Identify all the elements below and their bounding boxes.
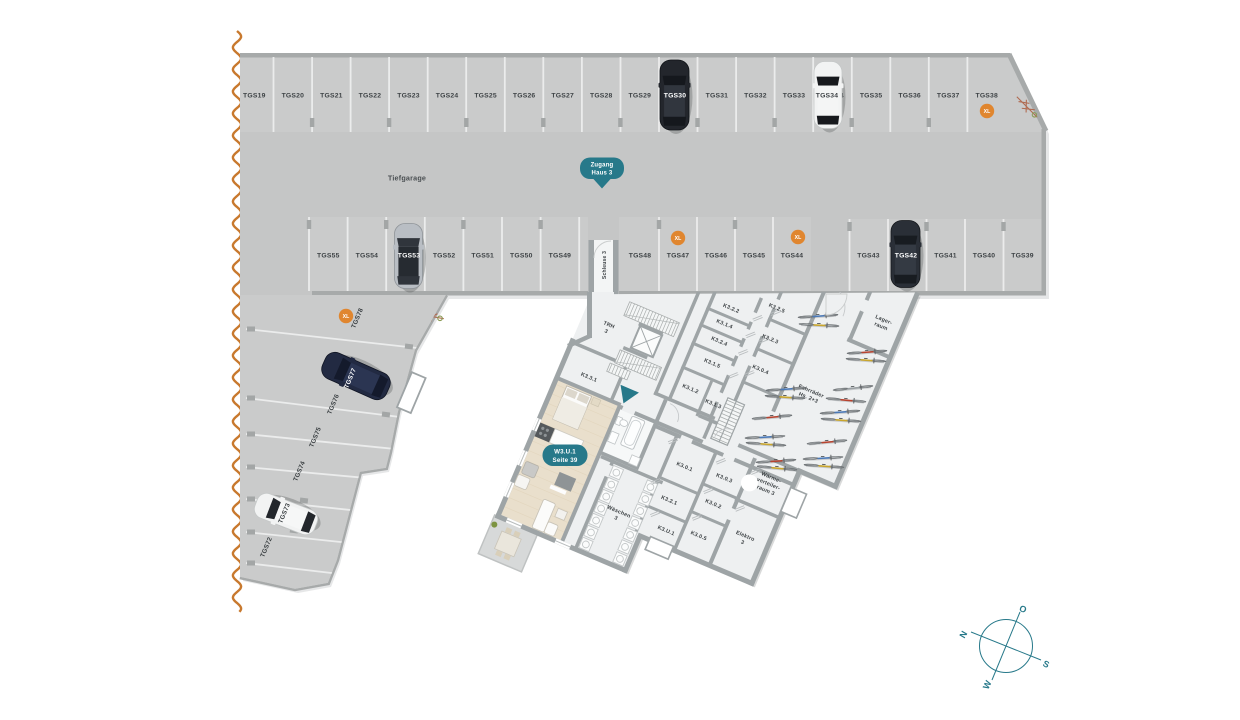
- svg-text:TGS45: TGS45: [743, 253, 766, 260]
- svg-text:TGS20: TGS20: [282, 93, 305, 100]
- svg-text:TGS26: TGS26: [513, 93, 536, 100]
- svg-text:XL: XL: [984, 109, 991, 115]
- svg-text:TGS55: TGS55: [317, 253, 340, 260]
- svg-text:S: S: [1041, 658, 1051, 670]
- svg-text:TGS38: TGS38: [975, 93, 998, 100]
- svg-text:TGS53: TGS53: [398, 253, 421, 260]
- svg-text:TGS35: TGS35: [860, 93, 883, 100]
- svg-text:XL: XL: [795, 235, 802, 241]
- svg-text:TGS41: TGS41: [934, 253, 957, 260]
- svg-text:Haus 3: Haus 3: [592, 171, 613, 177]
- svg-text:W: W: [981, 678, 994, 690]
- svg-text:TGS51: TGS51: [471, 253, 494, 260]
- svg-text:TGS21: TGS21: [320, 93, 343, 100]
- svg-text:TGS50: TGS50: [510, 253, 533, 260]
- svg-text:TGS24: TGS24: [436, 93, 459, 100]
- svg-text:Zugang: Zugang: [591, 163, 614, 169]
- svg-text:XL: XL: [675, 236, 682, 242]
- svg-text:TGS54: TGS54: [356, 253, 379, 260]
- svg-text:TGS37: TGS37: [937, 93, 960, 100]
- svg-text:TGS40: TGS40: [973, 253, 996, 260]
- svg-text:TGS23: TGS23: [397, 93, 420, 100]
- svg-text:TGS48: TGS48: [629, 253, 652, 260]
- svg-text:TGS22: TGS22: [359, 93, 382, 100]
- svg-text:TGS32: TGS32: [744, 93, 767, 100]
- svg-text:TGS28: TGS28: [590, 93, 613, 100]
- svg-text:TGS46: TGS46: [705, 253, 728, 260]
- svg-text:TGS25: TGS25: [474, 93, 497, 100]
- svg-text:XL: XL: [343, 314, 350, 320]
- svg-text:TGS27: TGS27: [551, 93, 574, 100]
- svg-text:TGS36: TGS36: [898, 93, 921, 100]
- svg-text:TGS44: TGS44: [781, 253, 804, 260]
- svg-text:TGS49: TGS49: [549, 253, 572, 260]
- svg-text:TGS42: TGS42: [895, 253, 918, 260]
- svg-text:TGS34: TGS34: [816, 93, 839, 100]
- svg-text:TGS52: TGS52: [433, 253, 456, 260]
- svg-text:W3.U.1: W3.U.1: [554, 449, 576, 456]
- svg-text:TGS33: TGS33: [783, 93, 806, 100]
- svg-text:N: N: [957, 629, 969, 640]
- svg-text:Tiefgarage: Tiefgarage: [388, 174, 426, 183]
- svg-text:TGS29: TGS29: [629, 93, 652, 100]
- svg-text:TGS47: TGS47: [667, 253, 690, 260]
- svg-text:TGS30: TGS30: [664, 93, 687, 100]
- svg-text:Seite 39: Seite 39: [553, 457, 578, 464]
- svg-text:TGS43: TGS43: [857, 253, 880, 260]
- svg-text:TGS39: TGS39: [1011, 253, 1034, 260]
- svg-text:TGS31: TGS31: [706, 93, 729, 100]
- svg-text:Schleuse 3: Schleuse 3: [602, 251, 608, 279]
- svg-text:TGS19: TGS19: [243, 93, 266, 100]
